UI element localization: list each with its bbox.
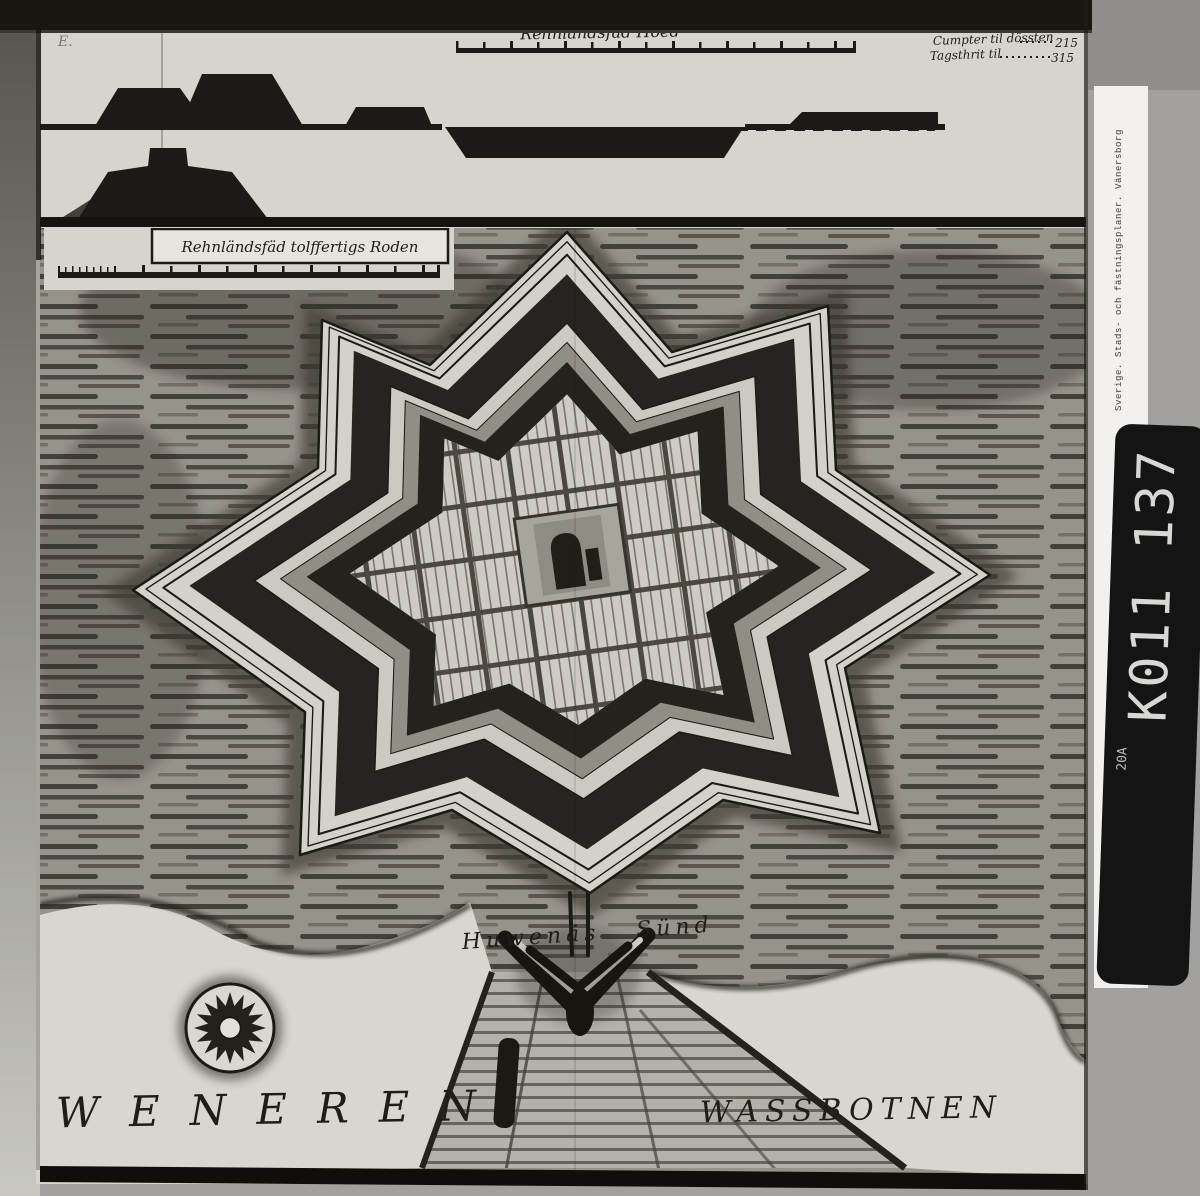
lake-wassbotnen-label: WASSBOTNEN xyxy=(700,1090,1004,1130)
photo-top-right-corner xyxy=(1086,0,1200,90)
legend-value-3: 315 xyxy=(1051,51,1074,65)
cartouche-title: Rehnländsfäd tolffertigs Roden xyxy=(181,238,419,256)
fortification-map-photo: E. Rehnländsfäd Hoed Cumpter til lüssten… xyxy=(0,0,1200,1196)
photo-left-edge xyxy=(0,0,40,1196)
map-main: Rehnländsfäd tolffertigs Roden Huwenäs S… xyxy=(30,209,1110,1180)
compass-rose-icon xyxy=(178,976,282,1080)
legend-label-3: Tagsthrit til xyxy=(930,47,1002,63)
sheet-top-border xyxy=(0,0,1092,30)
map-top-border xyxy=(40,217,1086,227)
film-code: K011 137 xyxy=(1118,447,1188,723)
lake-weneren-label: WENEREN xyxy=(55,1081,506,1138)
sheet-left-border-faint xyxy=(36,260,40,1170)
corner-mark: E. xyxy=(57,34,73,50)
legend-value-2: 215 xyxy=(1054,36,1078,50)
sheet-top-border-edge xyxy=(0,30,1092,33)
film-code-sub: 20A xyxy=(1115,747,1131,771)
sheet-left-border xyxy=(36,30,41,260)
archival-photo: E. Rehnländsfäd Hoed Cumpter til lüssten… xyxy=(0,0,1200,1196)
cartouche: Rehnländsfäd tolffertigs Roden xyxy=(44,228,454,290)
catalog-label: Sverige. Stads- och fästningsplaner. Vän… xyxy=(1114,129,1124,411)
